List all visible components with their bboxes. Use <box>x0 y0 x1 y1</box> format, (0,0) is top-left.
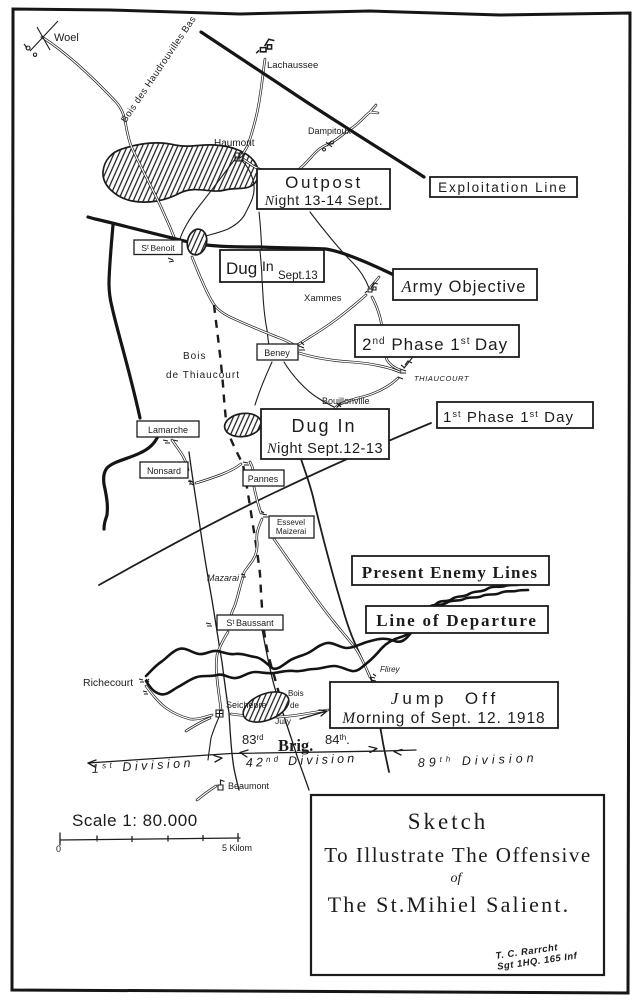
svg-text:Exploitation Line: Exploitation Line <box>438 180 568 195</box>
svg-text:To Illustrate The Offensive: To Illustrate The Offensive <box>324 843 591 867</box>
svg-text:Sept.13: Sept.13 <box>278 270 318 282</box>
svg-text:THIAUCOURT: THIAUCOURT <box>414 374 470 383</box>
svg-text:Beney: Beney <box>264 348 290 358</box>
svg-text:Lachaussee: Lachaussee <box>267 60 318 71</box>
svg-text:Dampitoux: Dampitoux <box>308 126 352 136</box>
svg-text:Richecourt: Richecourt <box>83 677 133 689</box>
svg-text:St Benoit: St Benoit <box>141 243 175 253</box>
svg-text:0: 0 <box>56 844 61 854</box>
svg-text:Bois: Bois <box>288 689 304 698</box>
svg-text:Night Sept.12-13: Night Sept.12-13 <box>266 441 383 457</box>
svg-text:Xammes: Xammes <box>304 293 342 304</box>
svg-text:Line of Departure: Line of Departure <box>376 611 538 630</box>
svg-text:de: de <box>290 701 299 710</box>
svg-text:Essevel: Essevel <box>277 518 305 527</box>
svg-text:Dug: Dug <box>226 259 257 278</box>
svg-text:Flirey: Flirey <box>380 665 401 674</box>
svg-text:In: In <box>262 258 274 274</box>
svg-text:Haumont: Haumont <box>214 138 255 149</box>
svg-text:Scale 1: 80.000: Scale 1: 80.000 <box>72 811 198 830</box>
svg-text:St Baussant: St Baussant <box>226 618 274 628</box>
svg-text:Morning of Sept. 12. 1918: Morning of Sept. 12. 1918 <box>341 710 545 727</box>
svg-text:Jury: Jury <box>275 716 292 726</box>
svg-text:Nonsard: Nonsard <box>147 466 181 476</box>
svg-text:Woel: Woel <box>54 32 79 44</box>
svg-text:Jump Off: Jump Off <box>391 689 499 708</box>
svg-text:Maizerai: Maizerai <box>276 527 306 536</box>
svg-text:Seichepre: Seichepre <box>226 700 267 710</box>
svg-text:Present Enemy Lines: Present Enemy Lines <box>362 563 538 582</box>
svg-text:The St.Mihiel Salient.: The St.Mihiel Salient. <box>328 892 571 917</box>
svg-text:Bouillonville: Bouillonville <box>322 396 370 406</box>
svg-text:Dug In: Dug In <box>291 416 356 436</box>
svg-text:5 Kilom: 5 Kilom <box>222 843 252 853</box>
svg-text:Beaumont: Beaumont <box>228 781 270 791</box>
svg-text:Lamarche: Lamarche <box>148 425 188 435</box>
svg-text:Mazarai: Mazarai <box>207 573 240 583</box>
svg-text:Outpost: Outpost <box>285 173 363 192</box>
svg-text:Brig.: Brig. <box>278 736 313 755</box>
svg-text:84th.: 84th. <box>325 732 350 747</box>
svg-text:Bois: Bois <box>183 351 206 362</box>
svg-text:Army Objective: Army Objective <box>401 277 527 296</box>
svg-text:Sketch: Sketch <box>408 809 489 834</box>
svg-text:de Thiaucourt: de Thiaucourt <box>166 370 240 381</box>
svg-text:Night 13-14 Sept.: Night 13-14 Sept. <box>264 192 383 209</box>
svg-text:Pannes: Pannes <box>248 474 279 484</box>
svg-text:1st Phase 1st Day: 1st Phase 1st Day <box>443 409 574 426</box>
